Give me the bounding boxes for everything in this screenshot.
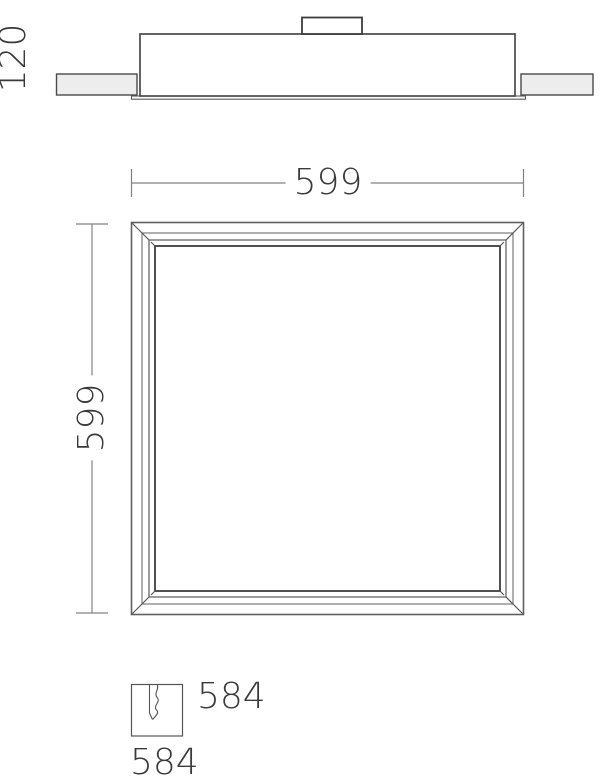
ceiling-tile-right bbox=[521, 74, 593, 95]
plan-view bbox=[76, 169, 524, 615]
dim-label-depth: 120 bbox=[0, 16, 32, 101]
cutout-width-label: 584 bbox=[197, 679, 266, 715]
ceiling-tile-left bbox=[57, 74, 138, 95]
cutout-height-label: 584 bbox=[130, 745, 199, 779]
light-aperture-square bbox=[155, 246, 500, 591]
driver-box bbox=[302, 18, 362, 35]
cutout-symbol bbox=[132, 685, 183, 737]
dim-label-height: 599 bbox=[74, 376, 110, 461]
panel-housing-side bbox=[140, 34, 515, 96]
panel-light-technical-drawing: 120 599 599 584 584 bbox=[0, 0, 600, 779]
side-view bbox=[4, 18, 594, 100]
dim-label-width: 599 bbox=[286, 165, 371, 201]
